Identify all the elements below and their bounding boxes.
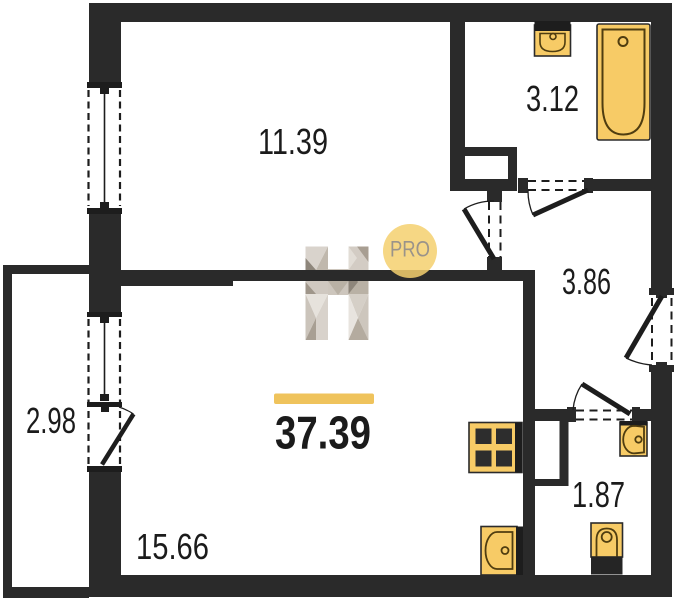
svg-text:1.87: 1.87 (572, 474, 625, 515)
svg-text:PRO: PRO (390, 237, 430, 262)
svg-text:37.39: 37.39 (275, 407, 371, 459)
svg-text:15.66: 15.66 (136, 526, 209, 567)
svg-text:11.39: 11.39 (258, 121, 328, 162)
svg-text:2.98: 2.98 (26, 400, 76, 441)
svg-text:3.86: 3.86 (562, 261, 611, 302)
svg-text:3.12: 3.12 (526, 78, 579, 119)
